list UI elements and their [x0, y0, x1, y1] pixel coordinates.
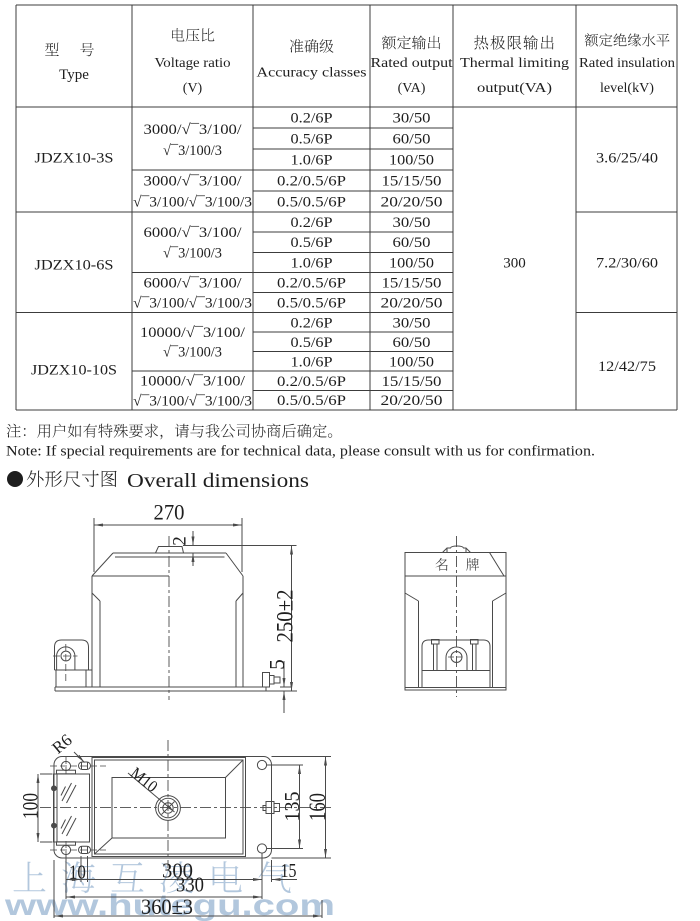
svg-text:15/15/50: 15/15/50 [382, 374, 442, 390]
svg-text:100/50: 100/50 [389, 153, 434, 169]
svg-text:(V): (V) [183, 81, 203, 96]
svg-text:R6: R6 [48, 730, 75, 757]
svg-text:100/50: 100/50 [389, 255, 434, 271]
svg-text:0.5/6P: 0.5/6P [291, 335, 333, 351]
svg-text:0.5/0.5/6P: 0.5/0.5/6P [277, 296, 346, 312]
svg-text:level(kV): level(kV) [600, 81, 654, 96]
svg-text:Rated insulation: Rated insulation [579, 56, 675, 71]
svg-text:135: 135 [280, 792, 304, 822]
svg-text:20/20/50: 20/20/50 [381, 195, 443, 211]
svg-text:0.2/6P: 0.2/6P [291, 315, 333, 331]
svg-text:15: 15 [281, 860, 297, 882]
svg-text:2: 2 [170, 536, 191, 546]
svg-text:1.0/6P: 1.0/6P [291, 255, 333, 271]
svg-text:(VA): (VA) [398, 81, 426, 96]
svg-text:√¯3/100/√¯3/100/3: √¯3/100/√¯3/100/3 [133, 394, 252, 410]
svg-text:6000/√¯3/100/: 6000/√¯3/100/ [144, 225, 243, 241]
svg-text:20/20/50: 20/20/50 [381, 296, 443, 312]
svg-text:15/15/50: 15/15/50 [382, 276, 442, 292]
svg-text:Overall dimensions: Overall dimensions [127, 470, 309, 492]
svg-text:Voltage ratio: Voltage ratio [155, 56, 231, 71]
svg-text:√¯3/100/3: √¯3/100/3 [163, 345, 222, 361]
svg-text:30/50: 30/50 [393, 315, 431, 331]
svg-text:√¯3/100/√¯3/100/3: √¯3/100/√¯3/100/3 [133, 296, 252, 312]
svg-text:30/50: 30/50 [393, 111, 431, 127]
svg-text:Accuracy classes: Accuracy classes [257, 66, 367, 81]
svg-text:JDZX10-3S: JDZX10-3S [35, 151, 114, 167]
svg-text:10000/√¯3/100/: 10000/√¯3/100/ [140, 325, 246, 341]
svg-text:Rated output: Rated output [371, 56, 453, 71]
svg-text:250±2: 250±2 [273, 590, 298, 643]
svg-text:100: 100 [18, 793, 43, 819]
svg-text:JDZX10-10S: JDZX10-10S [31, 363, 117, 379]
svg-text:0.2/6P: 0.2/6P [291, 111, 333, 127]
svg-text:160: 160 [305, 793, 330, 821]
svg-text:√¯3/100/3: √¯3/100/3 [163, 245, 222, 261]
svg-text:√¯3/100/3: √¯3/100/3 [163, 143, 222, 159]
svg-text:0.2/0.5/6P: 0.2/0.5/6P [277, 374, 346, 390]
svg-text:30/50: 30/50 [393, 215, 431, 231]
svg-text:M10: M10 [127, 763, 162, 796]
svg-text:0.5/0.5/6P: 0.5/0.5/6P [277, 393, 346, 409]
svg-text:Thermal limiting: Thermal limiting [460, 56, 569, 71]
svg-text:√¯3/100/√¯3/100/3: √¯3/100/√¯3/100/3 [133, 195, 252, 211]
svg-text:Type: Type [59, 67, 89, 83]
svg-text:3.6/25/40: 3.6/25/40 [596, 151, 658, 167]
svg-text:330: 330 [176, 873, 204, 897]
svg-text:1.0/6P: 1.0/6P [291, 153, 333, 169]
svg-text:0.2/0.5/6P: 0.2/0.5/6P [277, 276, 346, 292]
svg-text:10: 10 [69, 862, 86, 884]
svg-text:60/50: 60/50 [393, 132, 431, 148]
svg-text:output(VA): output(VA) [477, 81, 552, 96]
svg-text:5: 5 [265, 659, 289, 670]
svg-text:3000/√¯3/100/: 3000/√¯3/100/ [144, 174, 243, 190]
svg-text:10000/√¯3/100/: 10000/√¯3/100/ [140, 374, 246, 390]
svg-text:1.0/6P: 1.0/6P [291, 354, 333, 370]
svg-text:0.5/6P: 0.5/6P [291, 132, 333, 148]
svg-text:0.5/6P: 0.5/6P [291, 235, 333, 251]
svg-text:15/15/50: 15/15/50 [382, 174, 442, 190]
svg-text:12/42/75: 12/42/75 [598, 359, 656, 375]
svg-text:360±3: 360±3 [141, 894, 193, 919]
svg-text:0.5/0.5/6P: 0.5/0.5/6P [277, 195, 346, 211]
svg-text:6000/√¯3/100/: 6000/√¯3/100/ [144, 276, 243, 292]
svg-text:100/50: 100/50 [389, 354, 434, 370]
svg-text:20/20/50: 20/20/50 [381, 393, 443, 409]
svg-text:7.2/30/60: 7.2/30/60 [596, 255, 658, 271]
svg-text:0.2/6P: 0.2/6P [291, 215, 333, 231]
svg-text:Note: If special requirements: Note: If special requirements are for te… [6, 444, 595, 460]
svg-text:270: 270 [154, 500, 185, 525]
svg-text:60/50: 60/50 [393, 235, 431, 251]
svg-text:3000/√¯3/100/: 3000/√¯3/100/ [144, 122, 243, 138]
svg-text:0.2/0.5/6P: 0.2/0.5/6P [277, 174, 346, 190]
svg-text:300: 300 [503, 255, 526, 271]
svg-text:JDZX10-6S: JDZX10-6S [35, 258, 114, 274]
svg-text:60/50: 60/50 [393, 335, 431, 351]
